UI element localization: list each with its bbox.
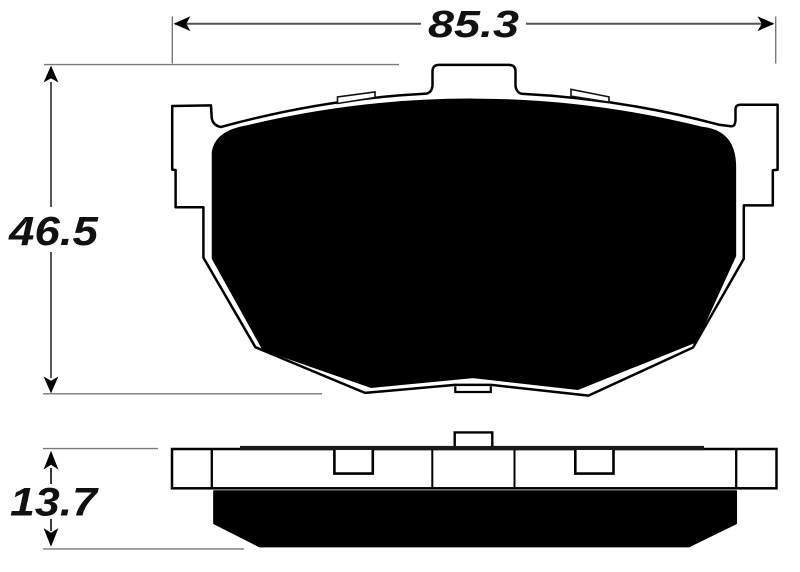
svg-text:85.3: 85.3: [428, 4, 519, 46]
svg-text:13.7: 13.7: [10, 480, 99, 524]
svg-text:46.5: 46.5: [8, 208, 99, 254]
